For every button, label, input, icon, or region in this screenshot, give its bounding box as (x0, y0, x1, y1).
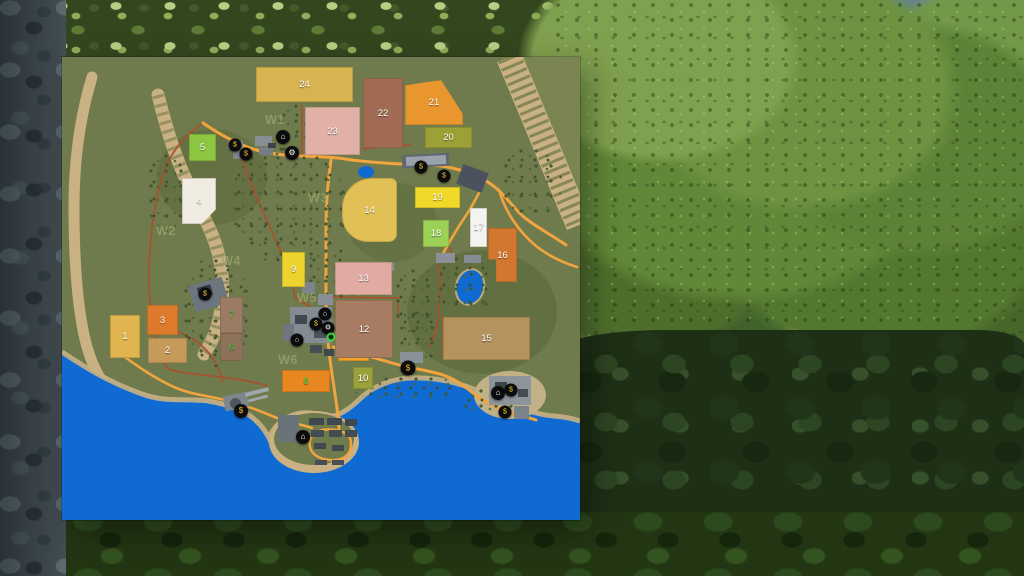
workshop-icon[interactable]: ⚙ (285, 146, 299, 160)
waypoint-w1: W1 (265, 113, 285, 127)
field-20[interactable]: 20 (425, 127, 472, 148)
field-18[interactable]: 18 (423, 220, 449, 247)
vehicle-shop-icon[interactable]: ⌂ (276, 130, 290, 144)
field-12[interactable]: 12 (335, 300, 393, 358)
waypoint-w3: W3 (308, 191, 328, 205)
field-10[interactable]: 10 (353, 367, 373, 389)
building (311, 430, 324, 437)
building (329, 430, 342, 437)
sell-point-icon[interactable]: $ (199, 288, 212, 301)
building (345, 430, 357, 437)
field-22[interactable]: 22 (363, 78, 403, 148)
field-number: 20 (443, 132, 454, 143)
field-number: 18 (431, 228, 442, 239)
marker-glyph: $ (314, 321, 318, 328)
building (332, 445, 344, 451)
vehicle-dealer-icon[interactable]: ⌂ (291, 334, 304, 347)
foreground-tree-trunk (0, 0, 66, 576)
animal-dealer-icon[interactable]: ⌂ (491, 386, 505, 400)
waypoint-w6: W6 (278, 353, 298, 367)
sell-point-icon[interactable]: $ (415, 161, 428, 174)
building (436, 253, 455, 263)
marker-glyph: ⌂ (323, 311, 327, 318)
building (309, 418, 324, 425)
field-number: 2 (165, 345, 170, 356)
field-number: 19 (432, 192, 443, 203)
forest-patch (437, 255, 495, 315)
marker-glyph: ⌂ (301, 433, 306, 441)
forest-floor (0, 512, 1024, 576)
field-number: 6 (229, 342, 234, 353)
building (332, 460, 344, 465)
building (345, 419, 357, 426)
marker-glyph: $ (419, 164, 423, 171)
field-number: 14 (364, 205, 375, 216)
field-13[interactable]: 13 (335, 262, 392, 295)
field-number: 17 (473, 222, 484, 233)
field-5[interactable]: 5 (189, 134, 216, 161)
field-number: 12 (359, 324, 370, 335)
marker-glyph: $ (244, 151, 248, 158)
field-15[interactable]: 15 (443, 317, 530, 360)
building (259, 147, 273, 155)
field-number: 8 (303, 376, 308, 387)
field-number: 13 (358, 273, 369, 284)
marker-glyph: ⌂ (295, 337, 299, 344)
marker-glyph: $ (239, 407, 243, 415)
field-number: 15 (481, 333, 492, 344)
marker-glyph: ⌂ (496, 389, 501, 397)
map-overlay[interactable]: 123456789101112131415161718192021222324W… (62, 57, 580, 520)
field-number: 3 (160, 315, 165, 326)
building (464, 255, 481, 263)
sell-point-icon[interactable]: $ (438, 170, 451, 183)
sell-point-icon[interactable]: $ (240, 148, 253, 161)
field-number: 5 (200, 142, 205, 153)
port-icon[interactable]: ⌂ (296, 430, 310, 444)
field-number: 22 (378, 108, 389, 119)
field-23[interactable]: 23 (305, 107, 360, 155)
field-24[interactable]: 24 (256, 67, 353, 102)
building (518, 389, 528, 397)
player-marker (327, 333, 336, 342)
building (315, 460, 327, 465)
field-1[interactable]: 1 (110, 315, 140, 358)
building (324, 349, 334, 356)
building (327, 418, 342, 425)
marker-glyph: $ (203, 291, 207, 298)
building (268, 143, 276, 148)
building (295, 315, 307, 324)
field-number: 16 (497, 250, 508, 261)
game-screen: 123456789101112131415161718192021222324W… (0, 0, 1024, 576)
building (514, 406, 529, 419)
field-number: 23 (327, 126, 338, 137)
waypoint-w2: W2 (156, 224, 176, 238)
pond-small (358, 166, 374, 178)
forest-patch (502, 147, 562, 217)
building (310, 345, 322, 353)
building (318, 294, 333, 305)
field-number: 10 (358, 373, 369, 384)
field-number: 7 (229, 310, 234, 321)
field-7[interactable]: 7 (220, 297, 243, 333)
field-3[interactable]: 3 (147, 305, 178, 335)
field-6[interactable]: 6 (220, 333, 243, 361)
marker-glyph: $ (503, 409, 507, 416)
marker-glyph: ⚙ (288, 149, 295, 157)
field-number: 1 (122, 331, 127, 342)
sell-point-icon[interactable]: $ (234, 404, 248, 418)
field-17[interactable]: 17 (470, 208, 487, 247)
marker-glyph: $ (233, 142, 237, 149)
sell-point-icon[interactable]: $ (499, 406, 512, 419)
field-number: 21 (429, 97, 440, 108)
west-cliffs (74, 77, 102, 381)
field-number: 9 (291, 264, 296, 275)
marker-glyph: $ (442, 173, 446, 180)
sell-point-icon[interactable]: $ (505, 384, 518, 397)
field-number: 24 (299, 79, 310, 90)
forest-patch (394, 267, 440, 333)
marker-glyph: $ (509, 387, 513, 394)
field-9[interactable]: 9 (282, 252, 305, 287)
field-8[interactable]: 8 (282, 370, 330, 392)
waypoint-w5: W5 (297, 291, 317, 305)
forest-patch (147, 152, 187, 232)
field-2[interactable]: 2 (148, 338, 187, 363)
marker-glyph: ⌂ (281, 133, 286, 141)
marker-glyph: ⚙ (325, 325, 331, 332)
field-19[interactable]: 19 (415, 187, 460, 208)
building (314, 443, 326, 449)
marker-glyph: $ (406, 364, 410, 372)
waypoint-w4: W4 (221, 254, 241, 268)
field-14[interactable]: 14 (342, 178, 397, 242)
sell-point-icon[interactable]: $ (401, 361, 416, 376)
field-number: 4 (196, 196, 201, 207)
